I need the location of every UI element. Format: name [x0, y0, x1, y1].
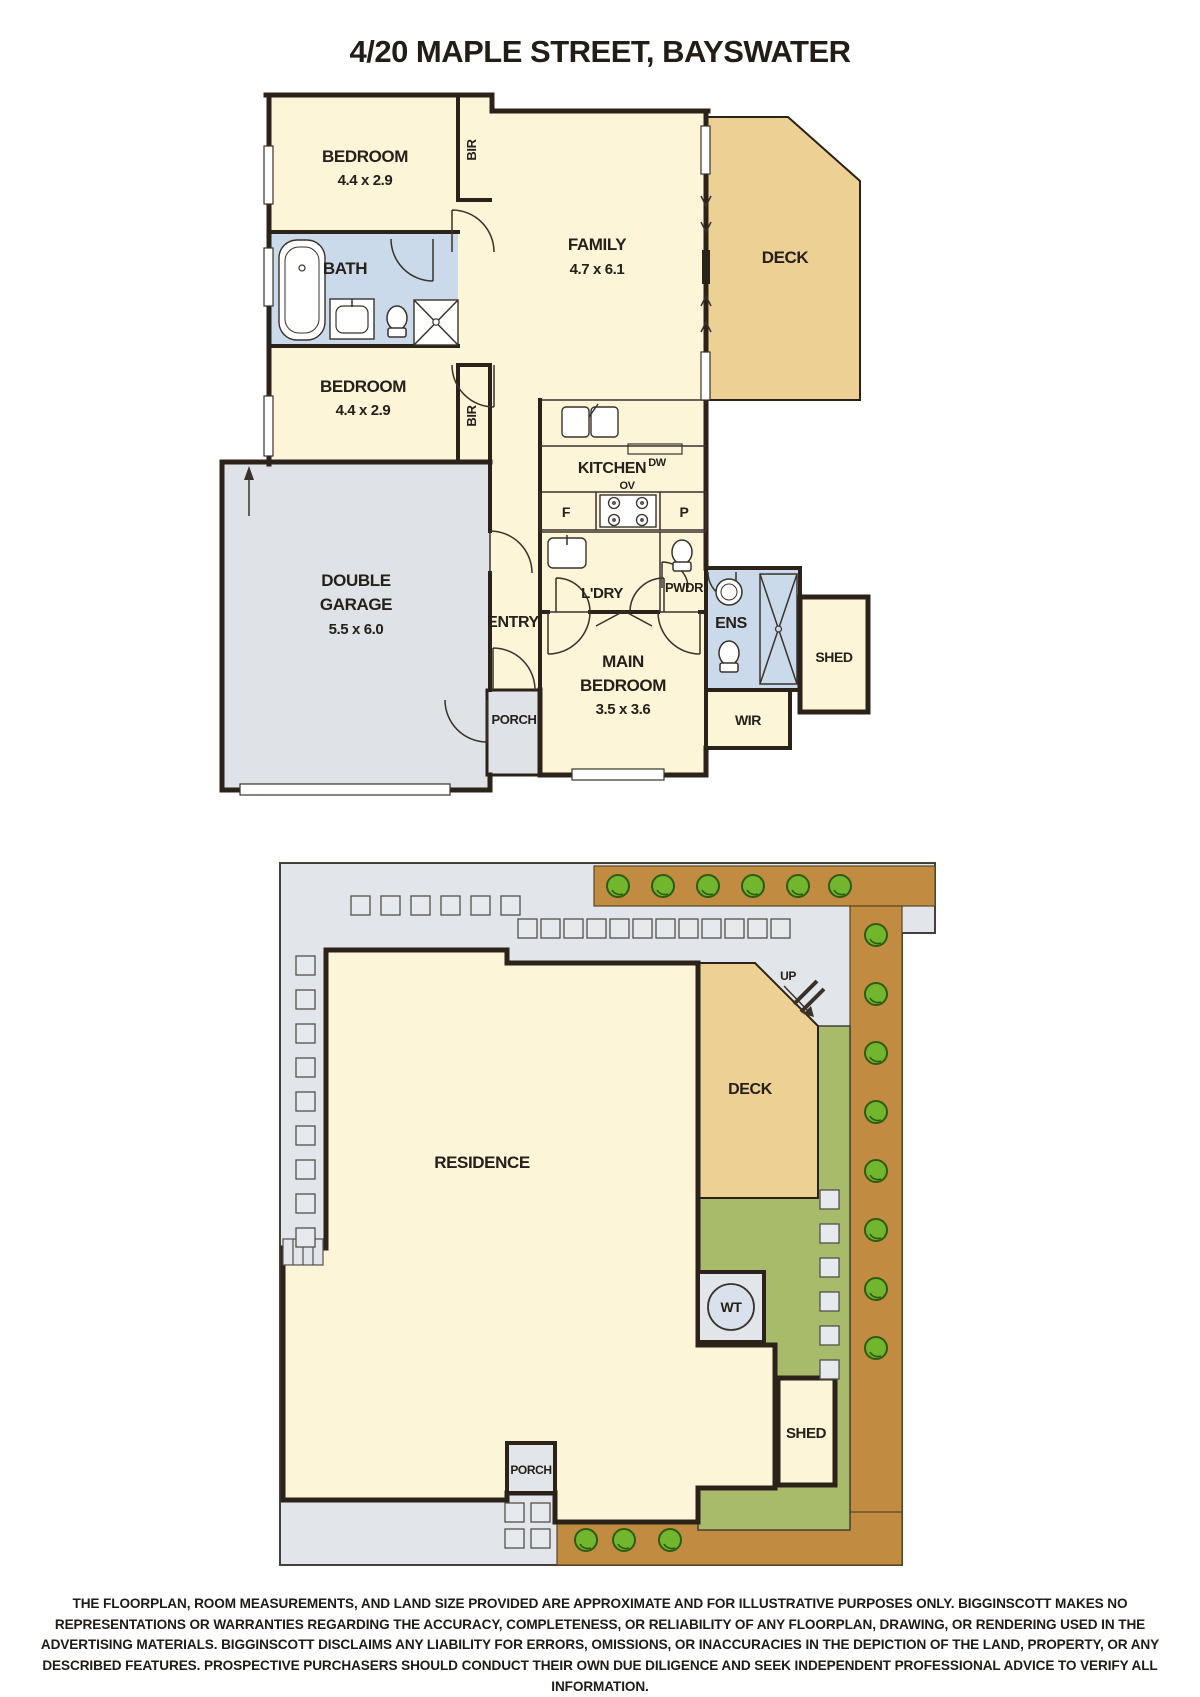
deck-fp-label: DECK [762, 248, 810, 267]
site-deck-label: DECK [728, 1081, 773, 1098]
disclaimer-text: THE FLOORPLAN, ROOM MEASUREMENTS, AND LA… [22, 1594, 1178, 1697]
toilet-icon [672, 540, 692, 571]
up-label: UP [780, 969, 796, 983]
sliding-door [701, 126, 710, 174]
garage-dims: 5.5 x 6.0 [329, 621, 384, 638]
dishwasher-label: DW [648, 457, 667, 469]
main-bedroom-label-2: BEDROOM [580, 676, 666, 695]
porch-area [487, 690, 540, 775]
main-bedroom-dims: 3.5 x 3.6 [596, 701, 651, 718]
bedroom1-label: BEDROOM [322, 147, 408, 166]
window [264, 146, 273, 204]
powder-label: PWDR [665, 580, 704, 595]
bir1-label: BIR [464, 138, 479, 160]
sink-bowl [562, 407, 589, 437]
sink-bowl [591, 407, 618, 437]
wir-label: WIR [735, 712, 761, 728]
garage-label-2: GARAGE [320, 595, 392, 614]
bedroom2-label: BEDROOM [320, 377, 406, 396]
site-porch-label: PORCH [510, 1463, 551, 1477]
entry-hall-area [490, 345, 542, 695]
window [572, 769, 664, 780]
site-shed-label: SHED [786, 1425, 827, 1442]
bir2-label: BIR [464, 404, 479, 426]
basin-icon [716, 579, 742, 605]
bath-label: BATH [323, 259, 367, 278]
site-plan: RESIDENCE DECK UP WT SHED PORCH [280, 863, 935, 1565]
pantry-label: P [680, 504, 689, 520]
window [264, 248, 273, 306]
bedroom1-dims: 4.4 x 2.9 [338, 172, 393, 189]
residence-label: RESIDENCE [434, 1153, 530, 1172]
shed-fp-label: SHED [815, 649, 853, 665]
slider-track [702, 250, 710, 284]
shower-rose [433, 319, 439, 325]
garage-label-1: DOUBLE [321, 571, 390, 590]
bedroom2-dims: 4.4 x 2.9 [336, 402, 391, 419]
floor-plan: BEDROOM 4.4 x 2.9 BIR FAMILY 4.7 x 6.1 D… [222, 95, 868, 795]
laundry-label: L'DRY [581, 585, 623, 602]
oven-label: OV [619, 480, 635, 492]
main-bedroom-label-1: MAIN [602, 652, 644, 671]
family-dims: 4.7 x 6.1 [570, 261, 625, 278]
ens-shower-rose [776, 626, 782, 632]
floorplan-document: 4/20 MAPLE STREET, BAYSWATER [0, 0, 1200, 1697]
family-label: FAMILY [568, 235, 627, 254]
toilet-icon [387, 306, 407, 337]
water-tank-label: WT [721, 1299, 743, 1315]
window [264, 396, 273, 456]
garage-door [240, 784, 450, 795]
ensuite-label: ENS [715, 615, 747, 632]
porch-fp-label: PORCH [492, 712, 537, 727]
entry-label: ENTRY [487, 614, 539, 631]
sliding-door [701, 352, 710, 400]
fridge-label: F [562, 504, 571, 520]
toilet-icon [719, 641, 739, 672]
kitchen-label: KITCHEN [578, 460, 646, 477]
floorplan-drawing: BEDROOM 4.4 x 2.9 BIR FAMILY 4.7 x 6.1 D… [0, 0, 1200, 1697]
